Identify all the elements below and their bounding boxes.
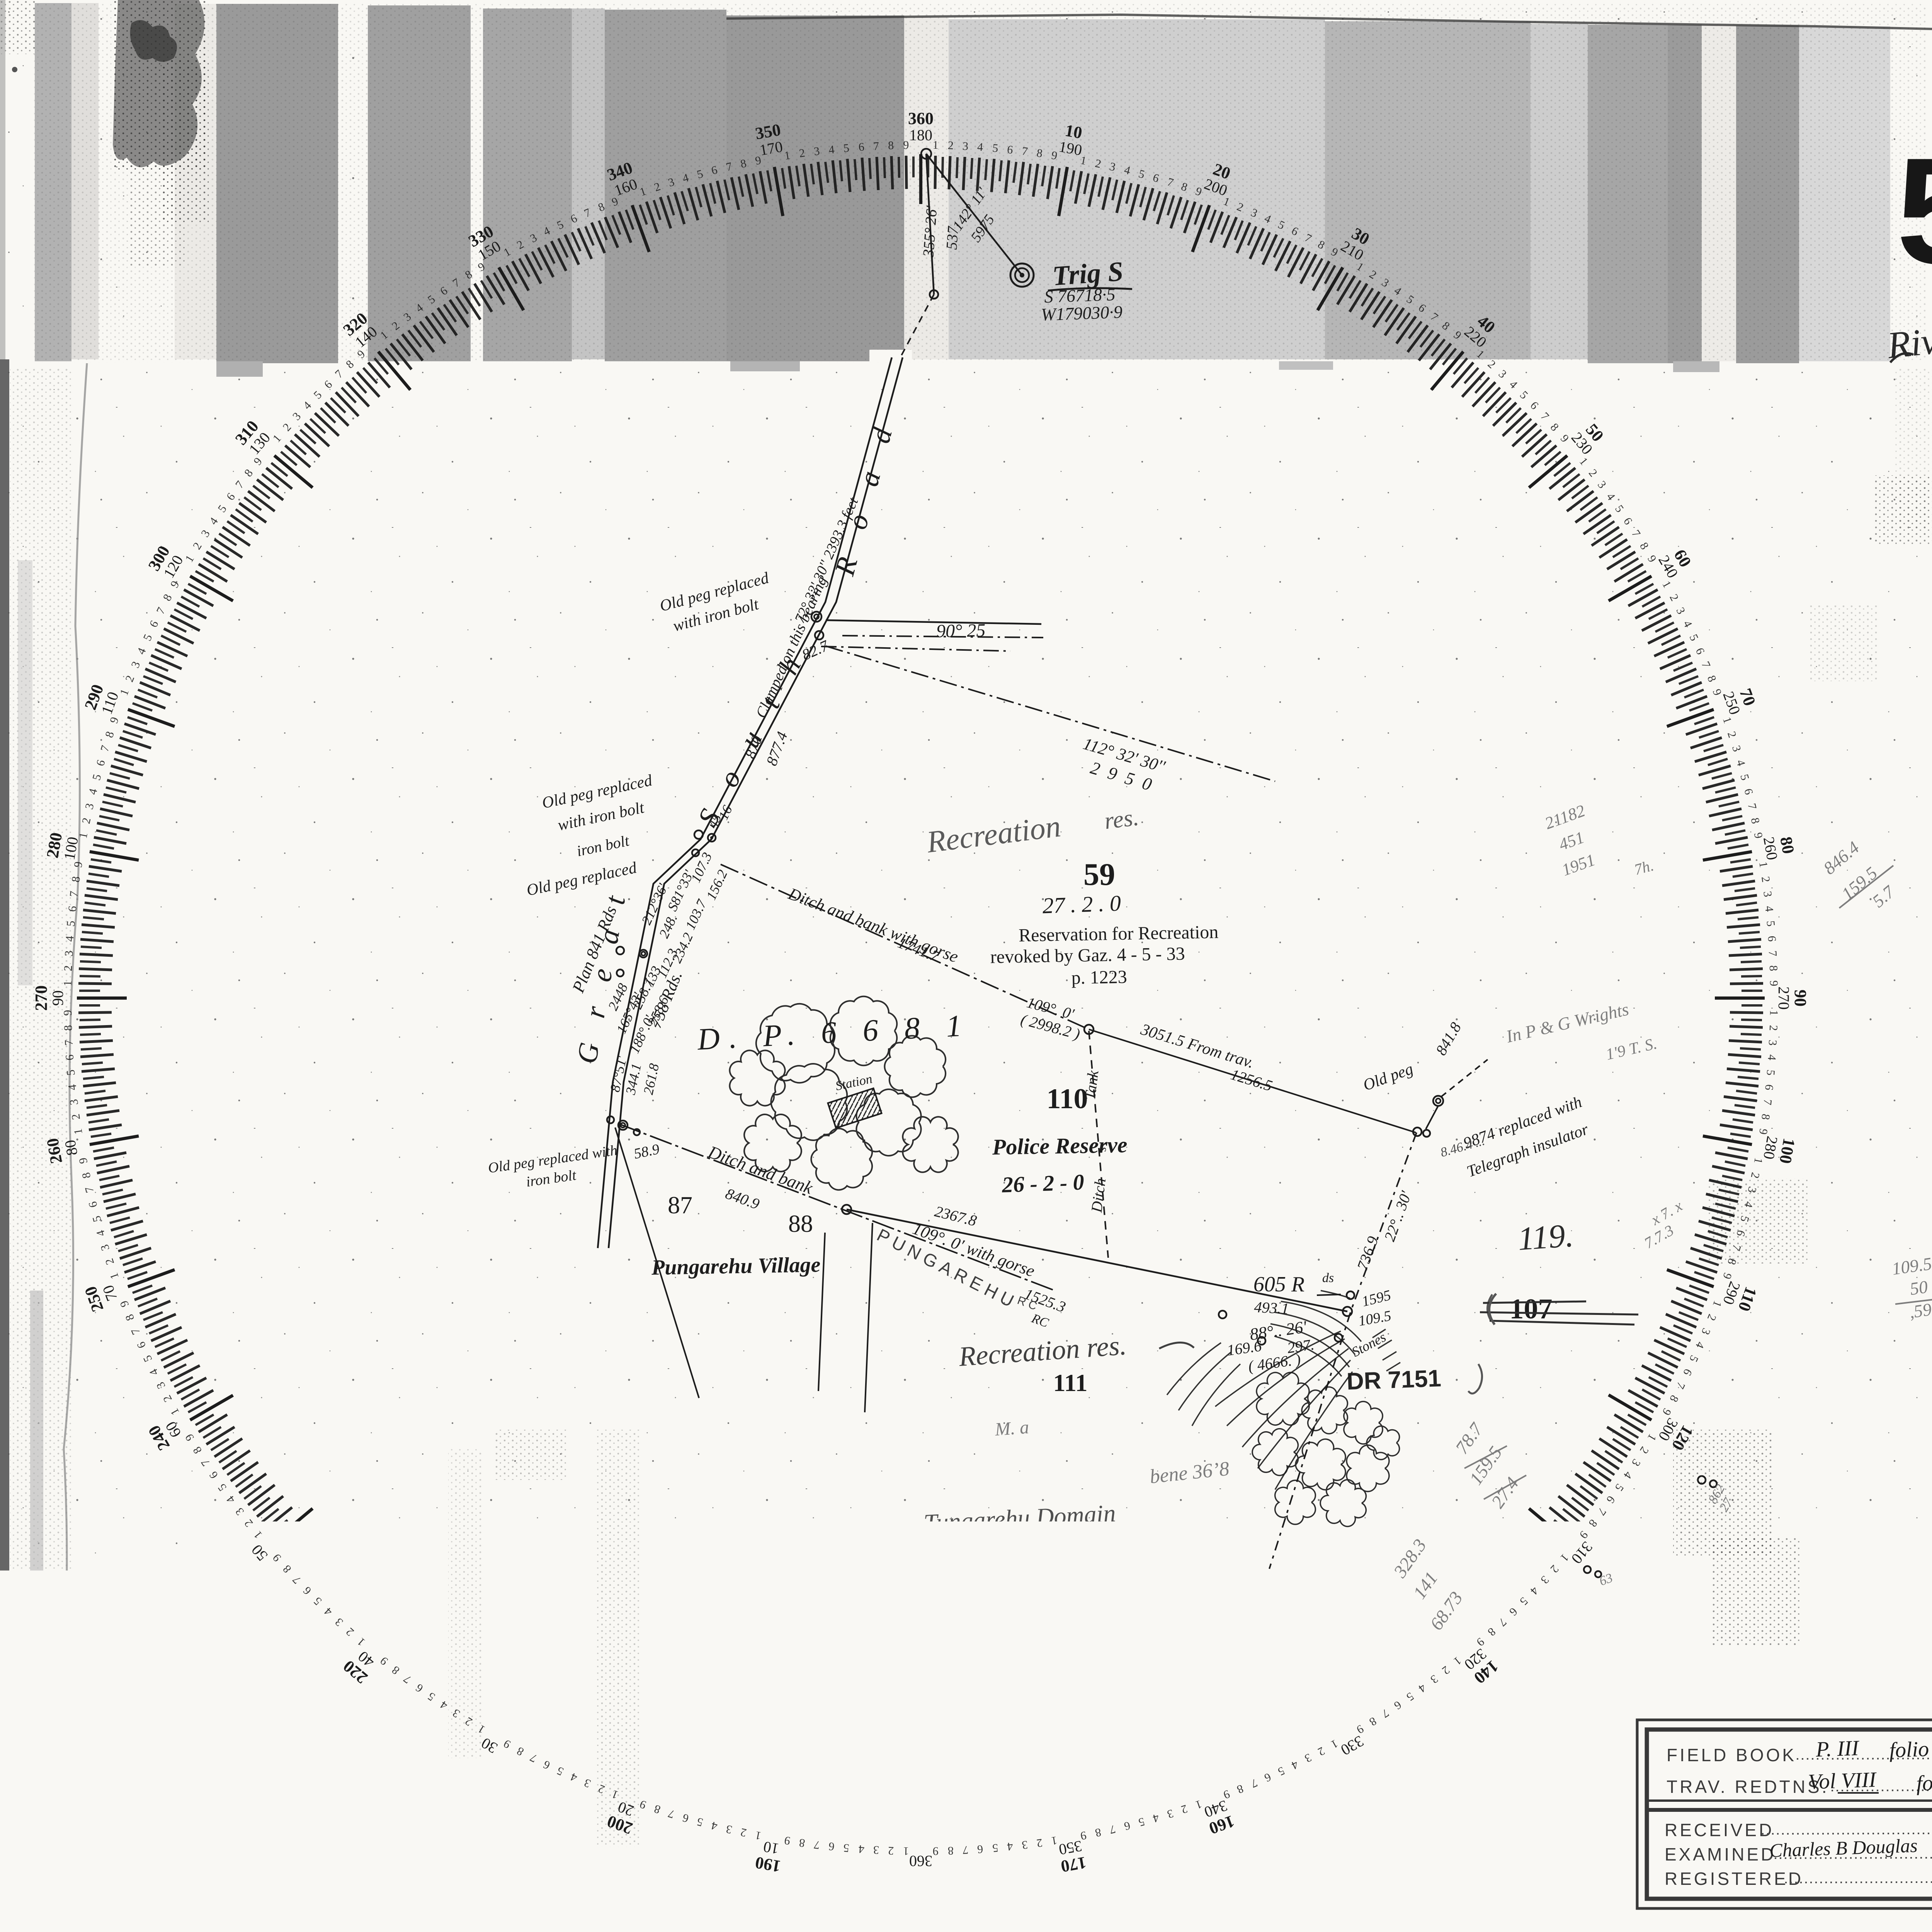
svg-text:ds: ds xyxy=(1322,1271,1334,1285)
svg-text:3: 3 xyxy=(63,950,76,957)
svg-text:2: 2 xyxy=(1767,1025,1780,1031)
svg-text:605 R: 605 R xyxy=(1253,1272,1304,1296)
svg-text:revoked by Gaz. 4 - 5 - 33: revoked by Gaz. 4 - 5 - 33 xyxy=(990,944,1185,968)
svg-text:80: 80 xyxy=(61,1139,81,1157)
svg-text:7: 7 xyxy=(962,1844,969,1857)
svg-text:1: 1 xyxy=(903,1845,909,1857)
svg-text:Vol VIII: Vol VIII xyxy=(1808,1768,1877,1794)
svg-text:7: 7 xyxy=(873,140,879,153)
svg-text:REGISTERED: REGISTERED xyxy=(1665,1869,1803,1889)
svg-text:FIELD BOOK: FIELD BOOK xyxy=(1667,1745,1796,1765)
svg-text:folio 108: folio 108 xyxy=(1916,1769,1932,1796)
svg-text:355° 26': 355° 26' xyxy=(919,205,940,258)
svg-text:6: 6 xyxy=(63,1054,77,1061)
svg-text:26 - 2 - 0: 26 - 2 - 0 xyxy=(1001,1169,1085,1197)
svg-text:9: 9 xyxy=(61,1010,74,1016)
svg-text:360: 360 xyxy=(909,1852,932,1870)
svg-text:180: 180 xyxy=(908,1868,934,1887)
svg-text:270: 270 xyxy=(1775,986,1793,1010)
svg-text:5: 5 xyxy=(64,1069,77,1076)
svg-text:7: 7 xyxy=(1766,950,1779,957)
svg-text:9: 9 xyxy=(903,139,909,151)
svg-text:107: 107 xyxy=(1510,1293,1553,1325)
svg-text:110: 110 xyxy=(1047,1083,1088,1115)
svg-text:Police Reserve: Police Reserve xyxy=(992,1132,1128,1160)
svg-text:P. III: P. III xyxy=(1815,1736,1860,1762)
svg-text:2: 2 xyxy=(947,139,954,152)
svg-text:M. a: M. a xyxy=(994,1417,1029,1440)
svg-text:9: 9 xyxy=(932,1845,939,1857)
svg-text:res.: res. xyxy=(1103,804,1140,834)
svg-text:8: 8 xyxy=(62,1025,75,1031)
svg-text:4: 4 xyxy=(977,141,983,154)
svg-text:2: 2 xyxy=(888,1844,894,1857)
svg-text:87: 87 xyxy=(668,1191,692,1219)
svg-text:1: 1 xyxy=(1767,1010,1780,1016)
svg-text:p. 1223: p. 1223 xyxy=(1071,967,1127,988)
svg-text:TRAV. REDTNS.: TRAV. REDTNS. xyxy=(1667,1777,1829,1797)
svg-text:6: 6 xyxy=(858,141,865,154)
svg-text:111: 111 xyxy=(1053,1369,1088,1396)
svg-text:8: 8 xyxy=(947,1844,954,1857)
svg-text:Pungarehu Village: Pungarehu Village xyxy=(651,1253,821,1280)
svg-text:W179030·9: W179030·9 xyxy=(1041,302,1122,324)
svg-text:8: 8 xyxy=(1767,965,1780,971)
svg-text:7: 7 xyxy=(63,1039,76,1046)
svg-text:9: 9 xyxy=(1767,980,1780,986)
svg-text:574: 574 xyxy=(1896,126,1932,295)
svg-text:3: 3 xyxy=(962,140,969,153)
svg-text:59: 59 xyxy=(1083,857,1115,892)
svg-text:50: 50 xyxy=(1909,1277,1929,1299)
svg-text:2: 2 xyxy=(62,965,75,971)
svg-text:6: 6 xyxy=(977,1842,983,1855)
svg-text:3: 3 xyxy=(1766,1039,1779,1046)
svg-text:5: 5 xyxy=(992,1841,999,1854)
svg-text:27 . 2 . 0: 27 . 2 . 0 xyxy=(1042,890,1121,918)
svg-text:5: 5 xyxy=(64,920,77,927)
svg-text:10: 10 xyxy=(762,1838,780,1858)
svg-text:4: 4 xyxy=(858,1842,865,1855)
svg-text:270: 270 xyxy=(32,985,51,1011)
svg-text:3: 3 xyxy=(873,1844,879,1857)
svg-text:1: 1 xyxy=(932,139,939,151)
svg-text:88: 88 xyxy=(788,1210,813,1237)
svg-text:360: 360 xyxy=(908,109,934,128)
svg-text:5: 5 xyxy=(1764,1069,1777,1076)
svg-text:5: 5 xyxy=(992,141,999,155)
svg-text:6: 6 xyxy=(1765,935,1778,942)
svg-text:8: 8 xyxy=(888,139,894,152)
svg-text:574: 574 xyxy=(1540,1902,1746,1932)
svg-text:90: 90 xyxy=(1791,990,1810,1007)
svg-text:5: 5 xyxy=(1764,920,1777,927)
svg-text:90° 25: 90° 25 xyxy=(936,620,986,641)
svg-text:RECEIVED: RECEIVED xyxy=(1665,1820,1774,1840)
svg-text:4: 4 xyxy=(1765,1054,1778,1061)
svg-text:EXAMINED: EXAMINED xyxy=(1665,1844,1776,1864)
svg-text:DR 7151: DR 7151 xyxy=(1346,1365,1442,1395)
svg-text:1: 1 xyxy=(61,980,74,986)
svg-text:90: 90 xyxy=(49,990,66,1006)
svg-text:119.: 119. xyxy=(1517,1216,1575,1257)
svg-text:180: 180 xyxy=(909,126,932,144)
svg-text:folio 51: folio 51 xyxy=(1889,1736,1932,1762)
svg-text:5: 5 xyxy=(843,1841,850,1854)
svg-text:Reservation for Recreation: Reservation for Recreation xyxy=(1019,922,1219,946)
svg-text:4: 4 xyxy=(63,935,77,942)
svg-text:5: 5 xyxy=(843,141,850,155)
